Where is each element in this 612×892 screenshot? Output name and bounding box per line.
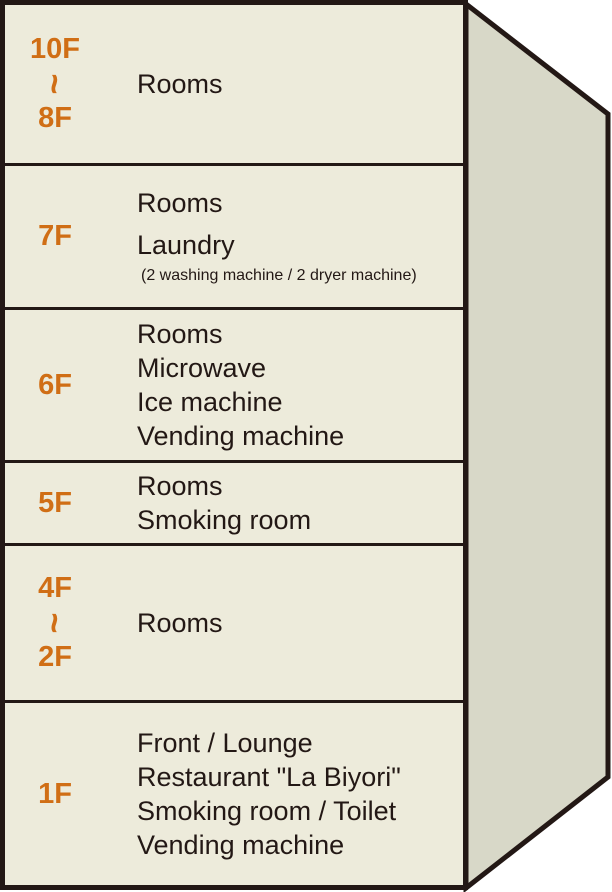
floor-guide-diagram: 10F~8FRooms7FRoomsLaundry(2 washing mach…	[0, 0, 612, 892]
facility-line: Microwave	[137, 351, 463, 385]
facility-list: RoomsLaundry(2 washing machine / 2 dryer…	[105, 166, 463, 307]
floor-row-4F-2F: 4F~2FRooms	[5, 546, 463, 703]
facility-list: Rooms	[105, 5, 463, 163]
floor-number: 10F	[30, 32, 80, 67]
floor-number: 2F	[38, 640, 72, 675]
floor-row-6F: 6FRoomsMicrowaveIce machineVending machi…	[5, 310, 463, 463]
floor-number: 1F	[38, 777, 72, 812]
floor-row-1F: 1FFront / LoungeRestaurant "La Biyori"Sm…	[5, 703, 463, 885]
facility-list: RoomsMicrowaveIce machineVending machine	[105, 310, 463, 460]
floor-number: 8F	[38, 101, 72, 136]
facility-list: Front / LoungeRestaurant "La Biyori"Smok…	[105, 703, 463, 885]
floor-range-wave-dash: ~	[38, 612, 72, 633]
floor-label: 4F~2F	[5, 546, 105, 700]
facility-list: Rooms	[105, 546, 463, 700]
facility-line: Restaurant "La Biyori"	[137, 760, 463, 794]
facility-line: Rooms	[137, 469, 463, 503]
floor-row-5F: 5FRoomsSmoking room	[5, 463, 463, 546]
facility-line: (2 washing machine / 2 dryer machine)	[137, 265, 463, 287]
facility-line: Rooms	[137, 606, 463, 640]
side-panel-shape	[466, 4, 608, 888]
facility-line: Rooms	[137, 317, 463, 351]
floor-label: 6F	[5, 310, 105, 460]
facility-line: Smoking room / Toilet	[137, 794, 463, 828]
floor-row-7F: 7FRoomsLaundry(2 washing machine / 2 dry…	[5, 166, 463, 310]
facility-line: Ice machine	[137, 385, 463, 419]
building-front-face: 10F~8FRooms7FRoomsLaundry(2 washing mach…	[0, 0, 468, 890]
floor-label: 1F	[5, 703, 105, 885]
floor-number: 4F	[38, 571, 72, 606]
facility-line: Front / Lounge	[137, 726, 463, 760]
floor-label: 5F	[5, 463, 105, 543]
facility-line: Vending machine	[137, 419, 463, 453]
floor-number: 7F	[38, 219, 72, 254]
floor-range-wave-dash: ~	[38, 73, 72, 94]
floor-row-10F-8F: 10F~8FRooms	[5, 5, 463, 166]
floor-label: 7F	[5, 166, 105, 307]
floor-label: 10F~8F	[5, 5, 105, 163]
facility-line: Rooms	[137, 186, 463, 220]
floor-number: 6F	[38, 368, 72, 403]
facility-list: RoomsSmoking room	[105, 463, 463, 543]
floor-number: 5F	[38, 486, 72, 521]
facility-line: Laundry	[137, 228, 463, 262]
facility-line: Rooms	[137, 67, 463, 101]
facility-line: Vending machine	[137, 828, 463, 862]
facility-line: Smoking room	[137, 503, 463, 537]
